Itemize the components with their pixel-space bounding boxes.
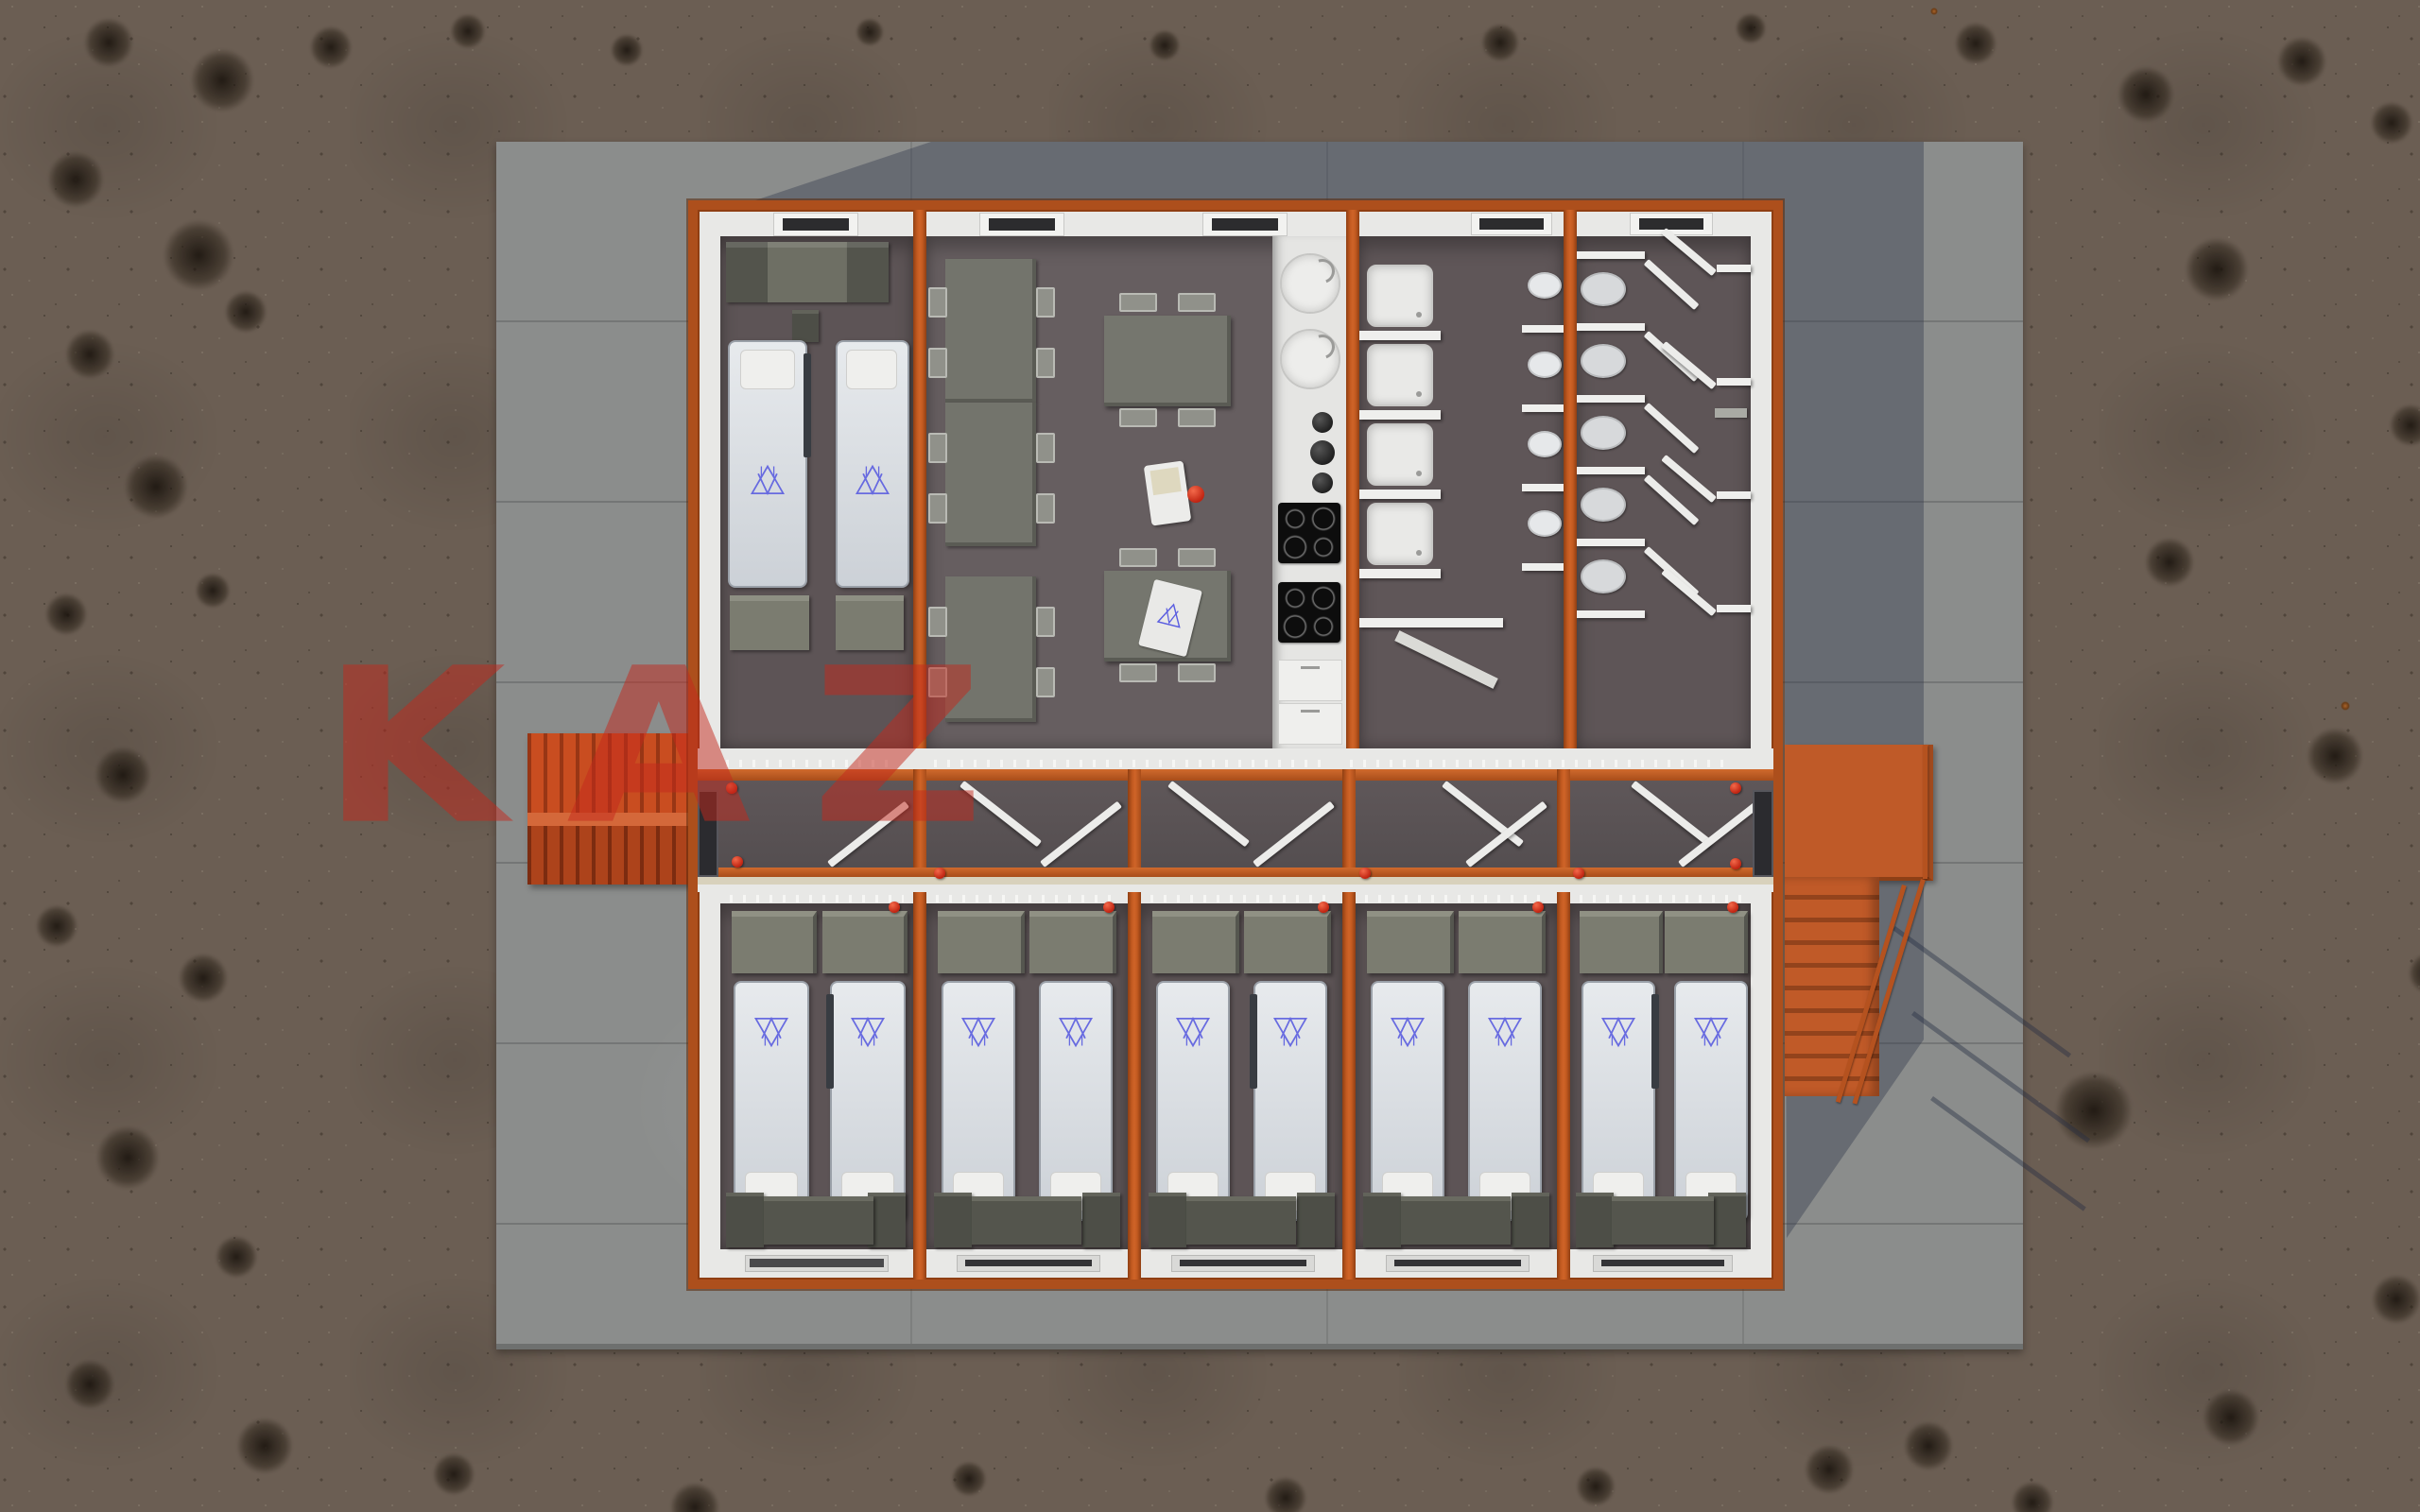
bed — [1674, 981, 1748, 1221]
vegetation-patch — [2382, 397, 2420, 454]
window — [957, 1255, 1100, 1272]
chair — [1178, 408, 1216, 427]
stall-partition — [1577, 323, 1645, 331]
chair — [1036, 433, 1055, 463]
bed-logo — [1598, 1009, 1639, 1051]
toilet — [1581, 416, 1626, 450]
chair — [1119, 408, 1157, 427]
nightstand — [792, 310, 819, 342]
vegetation-patch — [2401, 945, 2420, 1002]
wardrobe — [1367, 911, 1454, 973]
bed-logo — [1270, 1009, 1311, 1051]
side-chest — [726, 1193, 764, 1247]
corridor-bottom-wall — [698, 885, 1773, 892]
fire-extinguisher — [1727, 902, 1738, 913]
coat-hook-strip — [1365, 895, 1547, 902]
basin-partition — [1522, 563, 1564, 571]
vegetation-patch — [302, 19, 359, 76]
bed — [1582, 981, 1655, 1221]
vegetation-patch — [217, 283, 274, 340]
fire-extinguisher — [1730, 782, 1741, 794]
window — [1593, 1255, 1733, 1272]
vegetation-patch — [85, 737, 161, 813]
roof-vent — [1471, 213, 1552, 235]
wash-basin — [1528, 431, 1562, 457]
bed — [1468, 981, 1542, 1221]
vegetation-patch — [1947, 15, 2004, 72]
toilet — [1581, 559, 1626, 593]
wall-stub — [1717, 605, 1751, 612]
cabinet — [726, 242, 768, 302]
module-divider — [1346, 210, 1359, 748]
shower-tray — [1367, 265, 1433, 327]
bunk-rail — [804, 353, 811, 457]
wardrobe — [1244, 911, 1331, 973]
bench — [1401, 1196, 1511, 1245]
cooktop — [1278, 503, 1340, 563]
side-chest — [1082, 1193, 1120, 1247]
vegetation-patch — [28, 898, 85, 954]
chair — [1036, 493, 1055, 524]
cabinet — [1278, 660, 1342, 701]
chair — [1036, 287, 1055, 318]
vegetation-patch — [1730, 8, 1772, 49]
chair — [1119, 293, 1157, 312]
chair — [1178, 548, 1216, 567]
fire-extinguisher — [1103, 902, 1115, 913]
bowl — [1312, 472, 1333, 493]
bed-logo — [1484, 1009, 1526, 1051]
roof-vent — [1202, 213, 1288, 236]
vegetation-patch — [180, 38, 265, 123]
vegetation-patch — [1475, 17, 1526, 68]
side-chest — [1149, 1193, 1186, 1247]
roof-vent — [979, 213, 1064, 236]
wardrobe — [1665, 911, 1748, 973]
corridor-cross-beam — [1128, 769, 1141, 877]
bed-logo — [958, 1009, 999, 1051]
fire-extinguisher — [1359, 868, 1371, 879]
bed — [728, 340, 807, 588]
chair — [1119, 548, 1157, 567]
window — [1171, 1255, 1315, 1272]
vegetation-patch — [2136, 529, 2203, 595]
watermark-text: KAZ — [321, 656, 1059, 851]
dining-table — [1104, 316, 1231, 406]
shower-tray — [1367, 344, 1433, 406]
bench — [1612, 1196, 1714, 1245]
bed-logo — [1055, 1009, 1097, 1051]
stall-partition — [1577, 539, 1645, 546]
stall-partition — [1577, 610, 1645, 618]
bed-logo — [1172, 1009, 1214, 1051]
vegetation-patch — [113, 444, 199, 529]
bed-logo — [1690, 1009, 1732, 1051]
cabinet — [768, 242, 847, 302]
bed — [1156, 981, 1230, 1221]
stair-railing — [1923, 745, 1927, 879]
vegetation-patch — [1569, 1460, 1622, 1512]
chair — [1178, 663, 1216, 682]
vegetation-patch — [1895, 1413, 1962, 1479]
coat-hook-strip — [1150, 895, 1333, 902]
room-bedroom — [1141, 892, 1342, 1280]
vegetation-patch — [38, 586, 95, 643]
water-bottle — [1187, 486, 1204, 503]
bowl — [1310, 440, 1335, 465]
corridor-cross-beam — [1557, 769, 1570, 877]
window — [745, 1255, 889, 1272]
room-washroom — [1359, 210, 1564, 748]
side-chest — [1297, 1193, 1335, 1247]
shower-partition — [1359, 331, 1441, 340]
cabinet — [1278, 703, 1342, 745]
dining-long-table — [945, 259, 1036, 403]
vegetation-patch — [662, 1474, 728, 1512]
module-divider — [913, 892, 926, 1280]
vegetation-patch — [57, 1351, 123, 1417]
cross-wall — [1359, 618, 1503, 627]
side-chest — [1512, 1193, 1549, 1247]
stall-partition — [1577, 467, 1645, 474]
vegetation-patch — [227, 1408, 302, 1484]
vegetation-patch — [425, 1446, 482, 1503]
shower-partition — [1359, 410, 1441, 420]
cooktop — [1278, 582, 1340, 643]
cabinet — [847, 242, 889, 302]
vegetation-patch — [2004, 1474, 2061, 1512]
bed-logo — [751, 1009, 792, 1051]
fire-extinguisher — [1573, 868, 1584, 879]
coat-hook-strip — [1580, 895, 1741, 902]
shower-tray — [1367, 503, 1433, 565]
pillow — [740, 350, 795, 389]
bunk-rail — [1651, 994, 1659, 1089]
fire-extinguisher — [1318, 902, 1329, 913]
room-toilets — [1577, 210, 1751, 748]
wash-basin — [1528, 352, 1562, 378]
vegetation-patch — [444, 8, 492, 55]
module-divider — [1557, 892, 1570, 1280]
bench — [1186, 1196, 1296, 1245]
bed — [734, 981, 809, 1221]
vegetation-patch — [945, 1455, 993, 1503]
chair — [928, 433, 947, 463]
module-divider — [1342, 892, 1356, 1280]
vegetation-patch — [85, 1115, 170, 1200]
bottom-module-row — [698, 892, 1773, 1280]
side-chest — [1708, 1193, 1746, 1247]
vegetation-patch — [2363, 94, 2420, 151]
vegetation-patch — [2193, 1380, 2269, 1455]
wardrobe — [1029, 911, 1116, 973]
room-bedroom — [926, 892, 1128, 1280]
shower-partition — [1359, 569, 1441, 578]
kitchen-counter — [1272, 236, 1346, 748]
coat-hook-strip — [730, 895, 904, 902]
vegetation-patch — [1144, 25, 1185, 66]
side-chest — [868, 1193, 906, 1247]
vegetation-patch — [1796, 1436, 1862, 1503]
pillow — [846, 350, 897, 389]
wash-basin — [1528, 510, 1562, 537]
vegetation-patch — [2042, 1058, 2146, 1162]
bed-logo — [852, 461, 893, 503]
bed — [1253, 981, 1327, 1221]
vegetation-patch — [38, 142, 113, 217]
basin-partition — [1522, 325, 1564, 333]
wardrobe — [1152, 911, 1239, 973]
wash-basin — [1528, 272, 1562, 299]
corridor-cross-beam — [1342, 769, 1356, 877]
exit-doorway-east — [1753, 790, 1773, 877]
vegetation-patch — [2108, 57, 2184, 132]
side-chest — [1363, 1193, 1401, 1247]
chair — [1036, 348, 1055, 378]
side-chest — [1576, 1193, 1614, 1247]
module-divider — [1564, 210, 1577, 748]
bed — [1039, 981, 1113, 1221]
skirting — [698, 877, 1773, 885]
chair — [928, 348, 947, 378]
wall-stub — [1717, 265, 1751, 272]
twig — [1930, 8, 1938, 15]
stall-partition — [1577, 395, 1645, 403]
wall-stub — [1717, 491, 1751, 499]
stall-partition — [1577, 251, 1645, 259]
basin-partition — [1522, 484, 1564, 491]
bed-logo — [747, 461, 788, 503]
wardrobe — [822, 911, 907, 973]
wardrobe — [1459, 911, 1546, 973]
window — [1386, 1255, 1530, 1272]
vegetation-patch — [2174, 227, 2259, 312]
vegetation-patch — [208, 1228, 265, 1285]
toilet — [1581, 344, 1626, 378]
vegetation-patch — [2269, 28, 2335, 94]
bunk-rail — [1250, 994, 1257, 1089]
fire-extinguisher — [1730, 858, 1741, 869]
room-bedroom — [698, 892, 913, 1280]
basin-partition — [1522, 404, 1564, 412]
water-dispenser — [1144, 460, 1191, 525]
bed — [942, 981, 1015, 1221]
shower-tray — [1367, 423, 1433, 486]
module-divider — [1128, 892, 1141, 1280]
vegetation-patch — [57, 321, 123, 387]
vegetation-patch — [2363, 1266, 2420, 1332]
coat-hook-strip — [936, 895, 1118, 902]
toilet — [1581, 272, 1626, 306]
chair — [928, 287, 947, 318]
wardrobe — [732, 911, 817, 973]
side-chest — [934, 1193, 972, 1247]
fire-extinguisher — [1532, 902, 1544, 913]
dining-long-table — [945, 403, 1036, 546]
bed — [1371, 981, 1444, 1221]
vegetation-patch — [1257, 1469, 1314, 1512]
chair — [1119, 663, 1157, 682]
bed-logo — [847, 1009, 889, 1051]
room-bedroom — [1356, 892, 1557, 1280]
fire-extinguisher — [889, 902, 900, 913]
bed-logo — [1387, 1009, 1428, 1051]
coat-hook-strip — [1350, 760, 1728, 767]
twig — [2341, 701, 2350, 711]
bunk-rail — [826, 994, 834, 1089]
bench — [972, 1196, 1081, 1245]
wardrobe — [1580, 911, 1663, 973]
bed — [830, 981, 906, 1221]
room-bedroom — [1570, 892, 1773, 1280]
vegetation-patch — [2297, 718, 2373, 794]
scene: KAZ — [0, 0, 2420, 1512]
toilet — [1581, 488, 1626, 522]
vegetation-patch — [851, 13, 889, 51]
bed — [836, 340, 909, 588]
chair — [928, 493, 947, 524]
wall-cabinet-row — [726, 242, 889, 302]
chair — [1178, 293, 1216, 312]
wall-stub — [1717, 378, 1751, 386]
bench — [764, 1196, 873, 1245]
vegetation-patch — [76, 9, 142, 76]
wall-shelf — [1715, 408, 1747, 418]
vegetation-patch — [605, 28, 648, 72]
wardrobe — [938, 911, 1025, 973]
stair-landing — [1785, 745, 1933, 881]
roof-vent — [773, 213, 858, 236]
bowl — [1312, 412, 1333, 433]
vegetation-patch — [189, 567, 236, 614]
shower-partition — [1359, 490, 1441, 499]
vegetation-patch — [170, 945, 236, 1011]
